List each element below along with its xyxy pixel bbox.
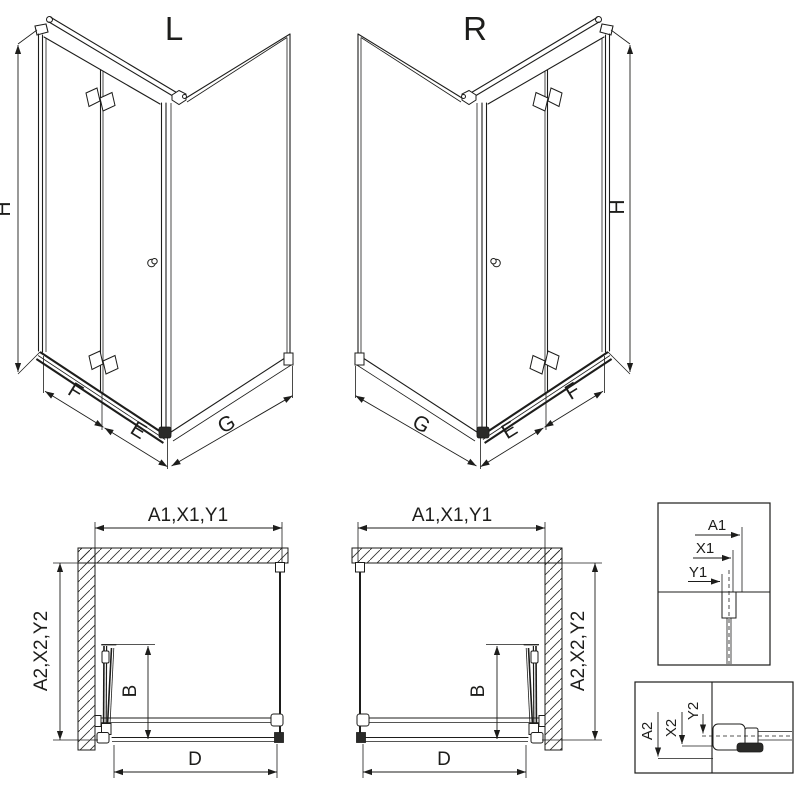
plan-view-right: A1,X1,Y1 A2,X2,Y2 B D (352, 505, 602, 778)
plan-view-left: A1,X1,Y1 A2,X2,Y2 B D (31, 505, 288, 778)
plan-right-geometry (356, 563, 546, 744)
drawing-canvas: L H F E G R H F E G A1,X1,Y1 A2,X2,Y2 B (0, 0, 800, 800)
shower-enclosure-technical-drawing: L H F E G R H F E G A1,X1,Y1 A2,X2,Y2 B (0, 0, 800, 800)
iso-view-left: L H F E G (0, 10, 294, 469)
detail-y2-label: Y2 (685, 702, 702, 720)
side-panel-dim-label: G (408, 410, 434, 438)
detail-box-bottom-profile: A2 X2 Y2 (635, 682, 793, 773)
door-fold-dim-label: B (120, 685, 141, 698)
detail-x2-label: X2 (663, 719, 680, 737)
fixed-panel-dim-label: F (561, 378, 584, 404)
height-dim-label: H (606, 199, 629, 214)
detail-x1-label: X1 (696, 540, 714, 557)
variant-label-left: L (165, 10, 183, 47)
detail-a2-label: A2 (639, 722, 656, 740)
detail-y1-label: Y1 (689, 564, 707, 581)
depth-dim-label: A2,X2,Y2 (31, 611, 52, 691)
side-panel-dim-label: G (214, 410, 240, 438)
iso-right-geometry (355, 17, 631, 470)
wall-top (352, 548, 562, 563)
detail-box-wall-profile: A1 X1 Y1 (658, 503, 770, 665)
width-dim-label: A1,X1,Y1 (148, 505, 228, 526)
detail-a1-label: A1 (708, 517, 726, 534)
entry-dim-label: D (188, 749, 202, 770)
plan-left-geometry (95, 563, 285, 744)
depth-dim-label: A2,X2,Y2 (568, 611, 589, 691)
wall-left (78, 548, 95, 750)
door-fold-dim-label: B (468, 685, 489, 698)
height-dim-label: H (0, 201, 15, 216)
wall-right (545, 548, 562, 750)
iso-view-right: R H F E G (355, 10, 631, 469)
fixed-panel-dim-label: F (64, 378, 87, 404)
wall-top (78, 548, 288, 563)
iso-left-geometry (18, 17, 294, 470)
variant-label-right: R (463, 10, 487, 47)
width-dim-label: A1,X1,Y1 (412, 505, 492, 526)
entry-dim-label: D (437, 749, 451, 770)
